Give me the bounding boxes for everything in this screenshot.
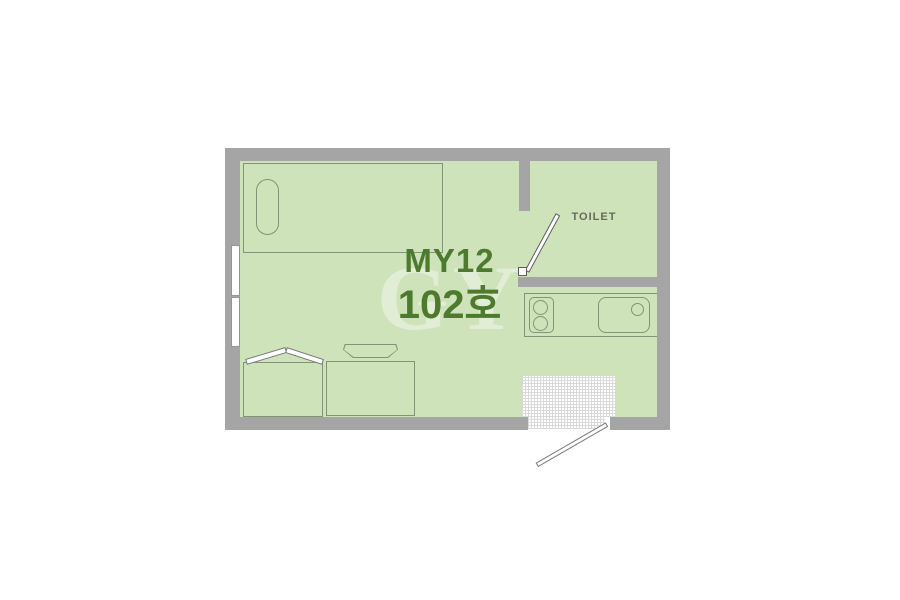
window-lower-sash	[231, 297, 240, 347]
entrance-door	[536, 422, 609, 467]
wall-bottom-right	[610, 417, 670, 430]
window-upper-sash	[231, 245, 240, 296]
sink-faucet	[631, 303, 644, 316]
floorplan-canvas: GY TOILET	[0, 0, 900, 600]
pillow	[256, 179, 279, 235]
wall-right	[657, 148, 670, 430]
toilet-bottom-wall	[518, 277, 657, 287]
unit-title: MY12 102호	[347, 244, 552, 332]
floorplan: GY TOILET	[225, 148, 670, 430]
wall-top	[225, 148, 670, 161]
entrance-mat	[522, 376, 615, 429]
wardrobe	[243, 362, 323, 417]
toilet-partition-wall	[519, 161, 530, 211]
chair	[343, 344, 398, 358]
kitchen-sink	[598, 297, 650, 333]
wall-bottom-left	[225, 417, 528, 430]
chair-seat	[344, 345, 397, 357]
toilet-label: TOILET	[555, 211, 633, 223]
desk	[326, 361, 415, 416]
unit-title-name: MY12	[347, 244, 552, 278]
